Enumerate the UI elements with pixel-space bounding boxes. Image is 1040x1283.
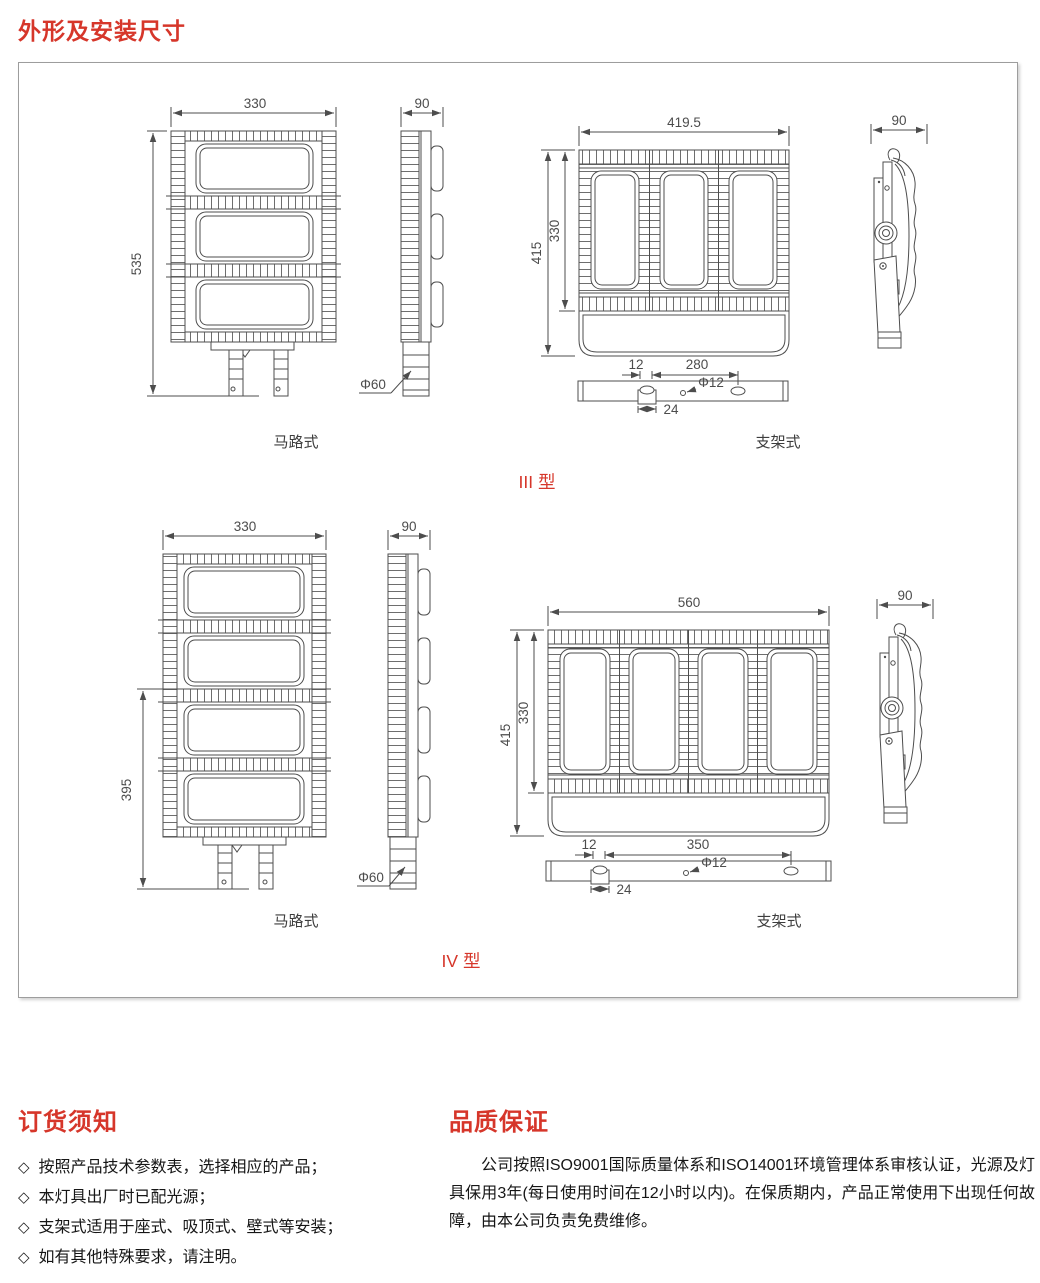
type3-label: III 型 <box>519 472 556 492</box>
quality-body: 公司按照ISO9001国际质量体系和ISO14001环境管理体系审核认证，光源及… <box>449 1152 1035 1236</box>
type4-bracket-side-view: 90 <box>877 588 933 823</box>
dim-type3-mount-offset: 12 <box>628 357 643 372</box>
dim-type3-bracket-side-width: 90 <box>891 113 906 128</box>
dim-type4-bracket-height-body: 330 <box>516 702 531 725</box>
dim-type3-side-width: 90 <box>414 96 429 111</box>
dim-type3-bracket-width: 419.5 <box>667 115 701 130</box>
type3-mount-bracket: 12 280 Φ12 24 <box>578 357 788 417</box>
dim-type3-bracket-height-total: 415 <box>529 242 544 265</box>
type3-road-side-view: 90 Φ60 <box>359 96 443 396</box>
dim-type4-bracket-side-width: 90 <box>897 588 912 603</box>
diamond-bullet-icon: ◇ <box>18 1189 30 1206</box>
type3-bracket-label: 支架式 <box>755 434 800 451</box>
type4-mount-bracket: 12 350 Φ12 24 <box>546 837 831 897</box>
dim-type3-mount-slot: 24 <box>663 402 679 417</box>
dim-type4-side-width: 90 <box>401 519 416 534</box>
type3-pole-mount <box>211 342 294 396</box>
type3-road-front-view: 330 535 <box>129 96 341 396</box>
type4-road-label: 马路式 <box>273 913 318 930</box>
dim-type4-mount-offset: 12 <box>581 837 596 852</box>
quality-title: 品质保证 <box>449 1102 1035 1137</box>
dim-type3-mount-spacing: 280 <box>686 357 709 372</box>
type-iii-drawings: 330 535 90 Φ60 <box>129 96 927 492</box>
ordering-item: ◇本灯具出厂时已配光源； <box>18 1187 443 1208</box>
type3-bracket-side-view: 90 <box>871 113 927 348</box>
dim-type4-bracket-height-total: 415 <box>498 724 513 747</box>
type4-road-front-view: 330 395 <box>119 519 331 889</box>
type-iv-drawings: 330 395 90 Φ60 <box>119 519 933 971</box>
type4-bracket-front-view: 560 415 330 <box>498 595 829 836</box>
ordering-item-text: 如有其他特殊要求，请注明。 <box>39 1249 247 1266</box>
page-title: 外形及安装尺寸 <box>18 12 186 46</box>
diamond-bullet-icon: ◇ <box>18 1219 30 1236</box>
ordering-item-text: 本灯具出厂时已配光源； <box>39 1189 215 1206</box>
ordering-item-text: 支架式适用于座式、吸顶式、壁式等安装； <box>39 1219 343 1236</box>
ordering-item: ◇按照产品技术参数表，选择相应的产品； <box>18 1157 443 1178</box>
dim-type3-road-width: 330 <box>244 96 267 111</box>
ordering-list: ◇按照产品技术参数表，选择相应的产品； ◇本灯具出厂时已配光源； ◇支架式适用于… <box>18 1157 443 1268</box>
dim-type3-pole-diameter: Φ60 <box>360 377 386 392</box>
catalog-page: { "page": { "title": "外形及安装尺寸" }, "diagr… <box>0 0 1040 1283</box>
type4-label: IV 型 <box>442 951 481 971</box>
type3-road-label: 马路式 <box>273 434 318 451</box>
dim-type4-road-width: 330 <box>234 519 257 534</box>
dim-type3-bracket-height-body: 330 <box>547 220 562 243</box>
diamond-bullet-icon: ◇ <box>18 1159 30 1176</box>
dim-type4-mount-spacing: 350 <box>687 837 710 852</box>
dim-type4-pole-diameter: Φ60 <box>358 870 384 885</box>
ordering-item: ◇支架式适用于座式、吸顶式、壁式等安装； <box>18 1217 443 1238</box>
ordering-title: 订货须知 <box>18 1102 443 1137</box>
ordering-item: ◇如有其他特殊要求，请注明。 <box>18 1247 443 1268</box>
dim-type4-mount-slot: 24 <box>616 882 632 897</box>
type3-bracket-front-view: 419.5 415 330 <box>529 115 789 356</box>
dim-type4-road-height: 395 <box>119 779 134 802</box>
dimension-drawing: 330 535 90 Φ60 <box>19 63 1017 997</box>
type4-bracket-label: 支架式 <box>756 913 801 930</box>
quality-section: 品质保证 公司按照ISO9001国际质量体系和ISO14001环境管理体系审核认… <box>449 1102 1035 1236</box>
dim-type4-bracket-width: 560 <box>678 595 701 610</box>
dim-type3-road-height: 535 <box>129 253 144 276</box>
type4-pole-mount <box>203 837 286 889</box>
ordering-section: 订货须知 ◇按照产品技术参数表，选择相应的产品； ◇本灯具出厂时已配光源； ◇支… <box>18 1102 443 1277</box>
type4-road-side-view: 90 Φ60 <box>357 519 430 889</box>
dim-type4-mount-hole: Φ12 <box>701 855 727 870</box>
dim-type3-mount-hole: Φ12 <box>698 375 724 390</box>
ordering-item-text: 按照产品技术参数表，选择相应的产品； <box>39 1159 327 1176</box>
dimension-figure-frame: 330 535 90 Φ60 <box>18 62 1018 998</box>
diamond-bullet-icon: ◇ <box>18 1249 30 1266</box>
